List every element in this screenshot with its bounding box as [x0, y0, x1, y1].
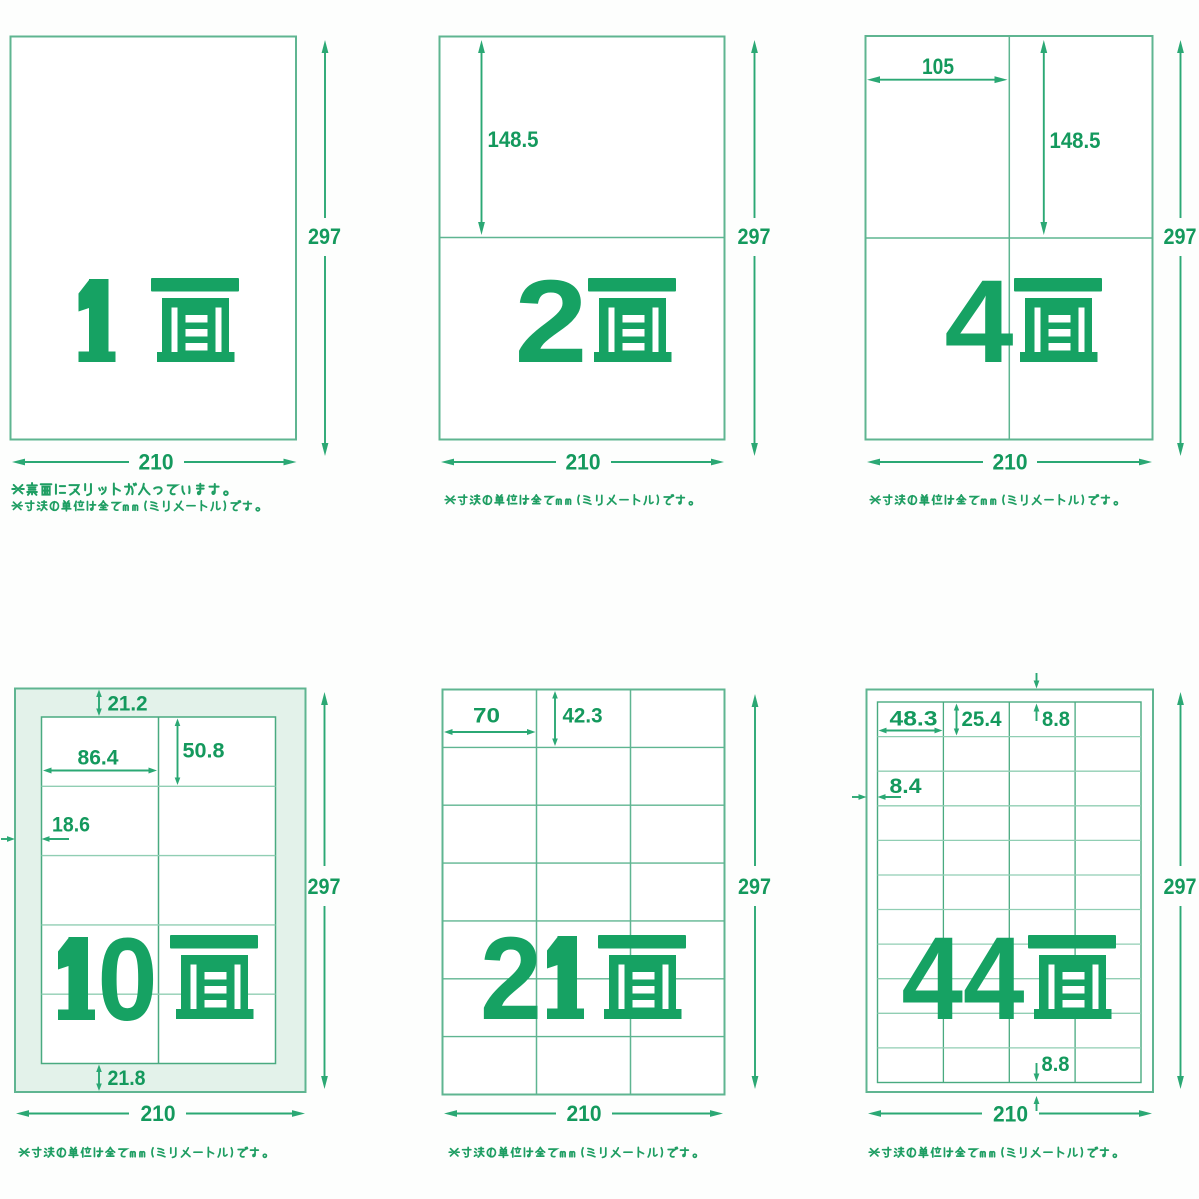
svg-text:297: 297: [1164, 224, 1197, 249]
svg-text:297: 297: [738, 874, 771, 899]
svg-text:48.3: 48.3: [890, 708, 938, 731]
svg-text:2: 2: [515, 256, 588, 388]
svg-text:42.3: 42.3: [563, 705, 603, 728]
svg-text:210: 210: [141, 1101, 176, 1126]
svg-text:148.5: 148.5: [1050, 128, 1101, 153]
svg-text:44: 44: [902, 913, 1025, 1045]
svg-text:8.8: 8.8: [1042, 1053, 1070, 1076]
svg-text:4: 4: [945, 256, 1014, 388]
svg-text:8.4: 8.4: [890, 775, 922, 798]
svg-text:25.4: 25.4: [962, 708, 1002, 731]
svg-text:105: 105: [922, 54, 954, 79]
svg-text:21.2: 21.2: [108, 693, 148, 716]
svg-text:210: 210: [993, 449, 1028, 474]
svg-text:86.4: 86.4: [78, 747, 119, 770]
svg-text:210: 210: [139, 449, 174, 474]
svg-text:210: 210: [566, 449, 601, 474]
svg-text:18.6: 18.6: [52, 814, 90, 837]
svg-text:2: 2: [480, 913, 542, 1045]
svg-text:148.5: 148.5: [488, 127, 539, 152]
svg-text:297: 297: [738, 224, 771, 249]
svg-text:0: 0: [98, 914, 158, 1046]
svg-text:21.8: 21.8: [108, 1067, 146, 1090]
svg-text:70: 70: [473, 705, 500, 728]
svg-text:50.8: 50.8: [183, 740, 225, 763]
svg-text:297: 297: [308, 874, 341, 899]
svg-text:210: 210: [993, 1101, 1028, 1126]
svg-text:297: 297: [1164, 874, 1197, 899]
svg-text:297: 297: [308, 224, 341, 249]
svg-text:210: 210: [567, 1101, 602, 1126]
svg-text:8.8: 8.8: [1042, 708, 1070, 731]
